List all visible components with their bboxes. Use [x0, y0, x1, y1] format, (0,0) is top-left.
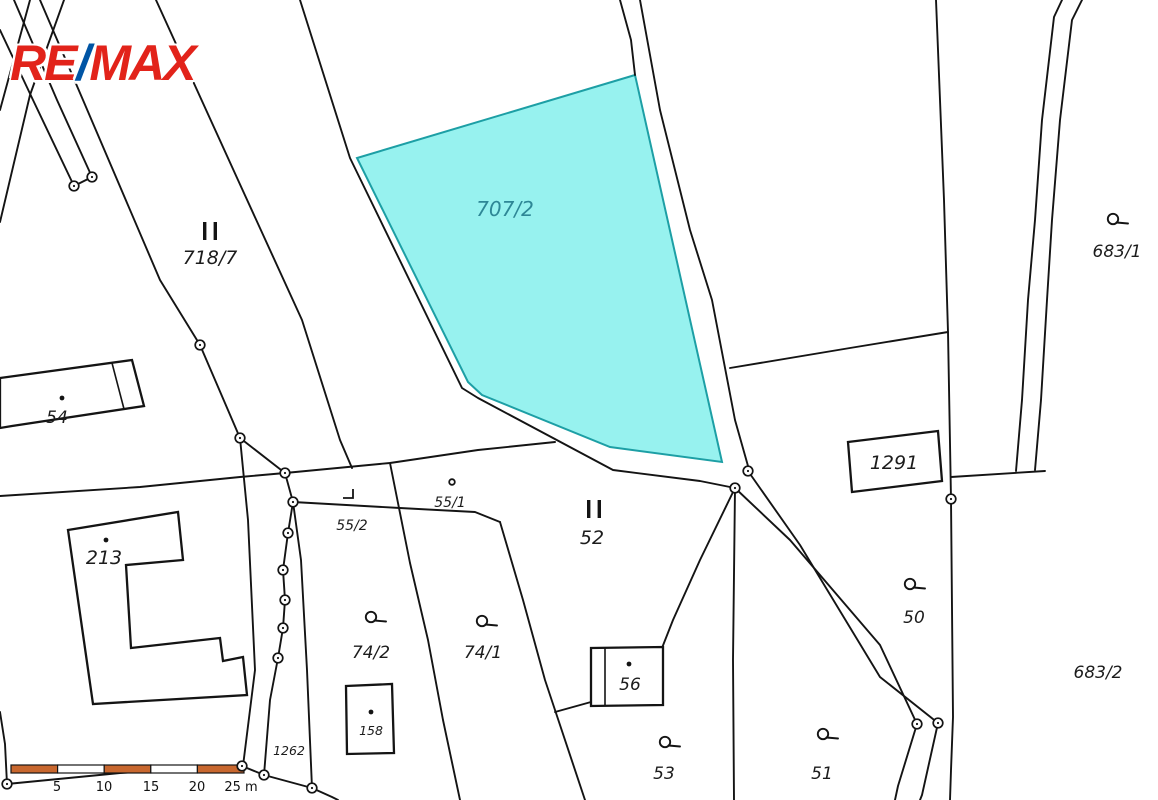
building-213	[68, 512, 247, 704]
parcel-label-56: 56	[619, 675, 641, 695]
highlighted-parcel-707-2	[357, 75, 722, 462]
remax-logo: RE/MAX	[10, 34, 194, 92]
scale-tick-15: 15	[143, 780, 160, 795]
parcel-label-55-2: 55/2	[336, 518, 368, 534]
parcel-label-74-2: 74/2	[352, 643, 390, 663]
parcel-label-51: 51	[811, 764, 833, 784]
parcel-label-158: 158	[359, 723, 383, 738]
parcel-label-213: 213	[86, 547, 122, 569]
orchard-icon	[660, 737, 680, 747]
scale-tick-10: 10	[96, 780, 113, 795]
building-213-dot	[104, 538, 109, 543]
cadastral-map: 5 10 15 20 25 m 718/7 707/2 54 213	[0, 0, 1158, 800]
parcel-label-707-2: 707/2	[476, 197, 534, 221]
parcel-label-718-7: 718/7	[183, 247, 238, 269]
parcel-label-683-2: 683/2	[1074, 663, 1123, 683]
parcel-label-683-1: 683/1	[1093, 242, 1142, 262]
orchard-icon	[477, 616, 497, 626]
double-bar-icon	[203, 222, 217, 240]
parcel-707-2-shape	[357, 75, 722, 462]
map-canvas: 5 10 15 20 25 m 718/7 707/2 54 213	[0, 0, 1158, 800]
parcel-label-74-1: 74/1	[464, 643, 502, 663]
corner-icon	[343, 489, 353, 498]
building-158-dot	[369, 710, 374, 715]
remax-logo-max: MAX	[89, 35, 194, 91]
parcel-label-1291: 1291	[870, 452, 918, 474]
parcel-label-53: 53	[653, 764, 675, 784]
point-icon	[449, 479, 455, 485]
parcel-label-52: 52	[580, 527, 604, 549]
scale-tick-5: 5	[53, 780, 61, 795]
orchard-icon	[366, 612, 386, 622]
remax-logo-slash: /	[75, 35, 89, 91]
building-54-dot	[60, 396, 65, 401]
orchard-icon	[818, 729, 838, 739]
parcel-label-50: 50	[903, 608, 925, 628]
parcel-label-1262: 1262	[273, 743, 305, 758]
parcel-label-54: 54	[46, 408, 68, 428]
scale-tick-20: 20	[189, 780, 206, 795]
orchard-icon	[905, 579, 925, 589]
parcel-label-55-1: 55/1	[434, 495, 465, 511]
scale-tick-25m: 25 m	[224, 780, 257, 795]
remax-logo-re: RE	[10, 35, 75, 91]
orchard-icon	[1108, 214, 1128, 224]
building-158	[346, 684, 394, 754]
building-56-dot	[627, 662, 632, 667]
buildings	[0, 360, 942, 754]
building-54	[0, 360, 144, 428]
double-bar-icon	[587, 500, 601, 518]
